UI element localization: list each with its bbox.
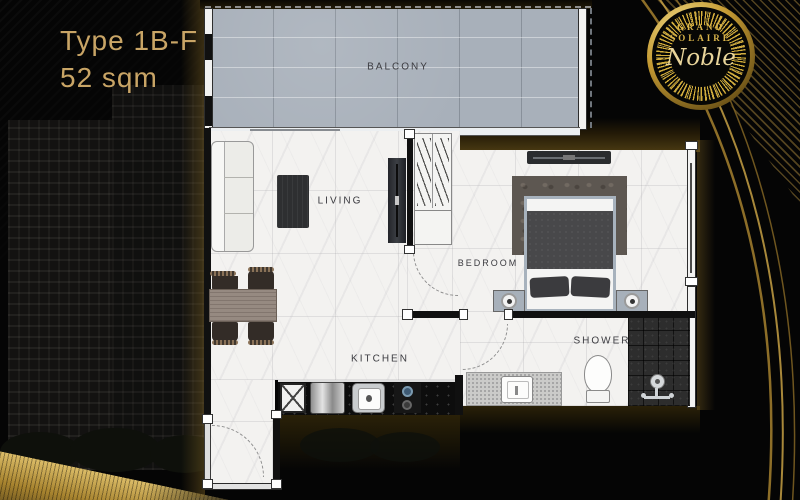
dining-chair [248, 271, 274, 290]
sink-drain [366, 395, 372, 402]
shower-handle [641, 393, 646, 398]
chair-back [248, 340, 274, 345]
logo-solaire: SOLAIRE [647, 33, 755, 44]
door-jamb [271, 479, 282, 489]
burner [402, 386, 413, 397]
sink-icon [352, 383, 385, 413]
floor-plan-stage: BALCONY [0, 0, 800, 500]
door-jamb [402, 309, 413, 320]
bed-duvet [527, 211, 613, 269]
bed [524, 196, 616, 312]
closet-divider [432, 134, 433, 208]
washer-icon [310, 382, 345, 414]
door-jamb [202, 479, 213, 489]
window-jamb [685, 141, 698, 150]
hanger-icon [417, 138, 431, 206]
door-jamb [504, 309, 513, 320]
speaker-icon [501, 293, 517, 309]
left-wall-lower [204, 418, 211, 486]
door-jamb [459, 309, 468, 320]
balcony-dashed-edge [590, 8, 592, 128]
dining-chair [212, 322, 238, 341]
speaker-icon [624, 293, 640, 309]
door-jamb [271, 410, 282, 419]
shower-head-dot [655, 379, 660, 384]
burner [402, 400, 412, 410]
bathroom-wall [405, 311, 464, 318]
cooktop-icon [394, 383, 421, 413]
tv-console-handle [395, 196, 399, 205]
nightstand [616, 290, 648, 312]
unit-area: 52 sqm [60, 59, 198, 96]
unit-type: Type 1B-F [60, 22, 198, 59]
shower-pipe [644, 396, 670, 399]
tv-icon [527, 151, 611, 164]
kitchen-label: KITCHEN [351, 354, 409, 365]
vanity-counter [466, 372, 562, 406]
basin-inner [507, 381, 529, 399]
entry-right-wall [273, 415, 280, 485]
balcony-label: BALCONY [367, 62, 429, 73]
sofa-cushion-line [224, 213, 253, 214]
unit-title: Type 1B-F 52 sqm [60, 22, 198, 96]
door-jamb [404, 129, 415, 139]
door-jamb [202, 414, 213, 424]
bed-pillow [530, 276, 570, 298]
toilet-icon [584, 355, 612, 393]
bedroom-label: BEDROOM [458, 258, 519, 268]
balcony-dashed-edge [205, 6, 591, 8]
sofa-cushion-line [224, 177, 253, 178]
tv-console [388, 158, 406, 243]
basin-icon [501, 376, 533, 403]
balcony-left-wall [205, 34, 212, 60]
shower-label: SHOWER [574, 336, 631, 347]
service-shaft-icon [280, 383, 306, 413]
window [690, 163, 692, 273]
chair-back [248, 267, 274, 272]
logo-grand: GRAND [647, 22, 755, 33]
closet [414, 133, 452, 245]
sofa-backrest [212, 142, 225, 251]
hanger-icon [435, 138, 449, 206]
speaker-dot [507, 299, 512, 304]
tv-stand [563, 155, 575, 160]
coffee-table [277, 175, 309, 228]
chair-back [210, 271, 236, 276]
basin-faucet [515, 386, 518, 395]
shower-head-icon [650, 374, 665, 389]
living-label: LIVING [318, 196, 363, 207]
brand-logo: GRAND SOLAIRE Noble [647, 2, 755, 110]
bathroom-wall [506, 311, 695, 318]
balcony-right-wall [578, 8, 587, 130]
shower-handle [669, 393, 674, 398]
logo-text: GRAND SOLAIRE Noble [647, 22, 755, 71]
closet-shelf-line [415, 210, 451, 211]
chair-back [212, 340, 238, 345]
shower-area [628, 318, 690, 406]
counter-end-wall [455, 375, 463, 415]
door-jamb [404, 245, 415, 254]
sofa [211, 141, 254, 252]
toilet-tank [586, 390, 610, 403]
dining-chair [212, 271, 238, 290]
bed-pillow [571, 276, 611, 298]
window-jamb [685, 277, 698, 286]
logo-noble: Noble [647, 45, 755, 71]
dining-table [209, 289, 277, 322]
speaker-dot [630, 299, 635, 304]
divider-wall [407, 133, 413, 250]
dining-chair [248, 322, 274, 341]
balcony-left-wall [205, 96, 212, 126]
